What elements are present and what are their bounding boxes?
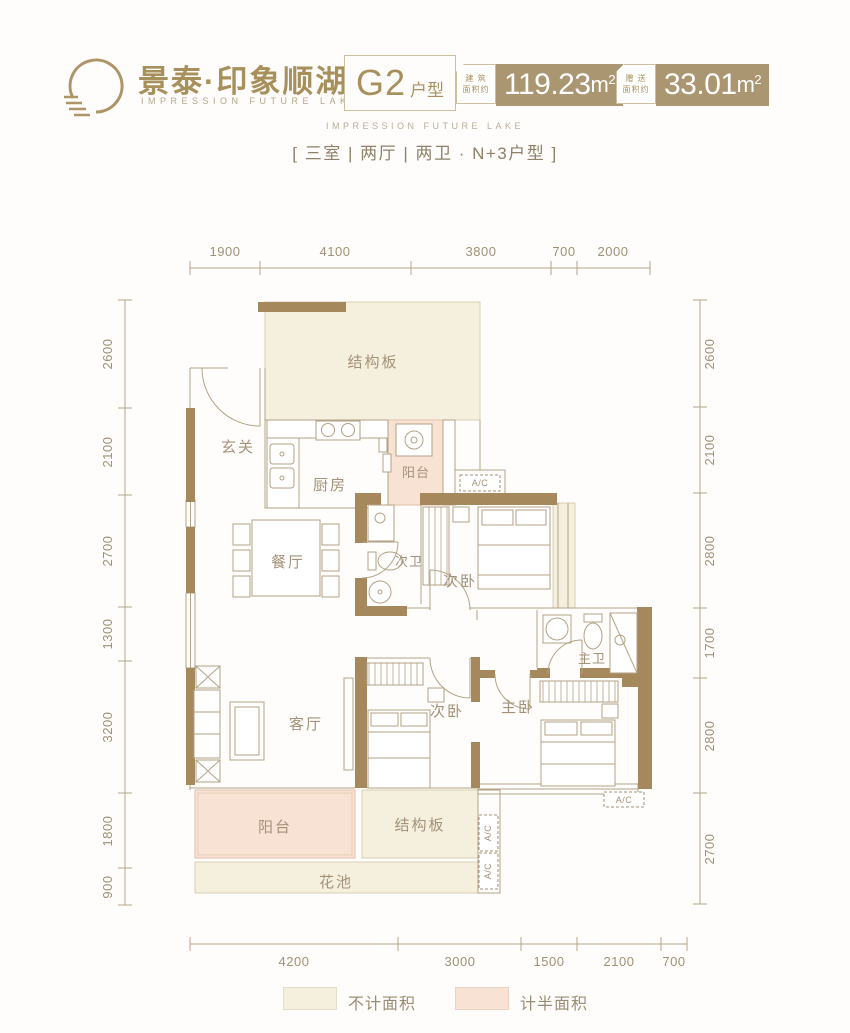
legend-swatch-half-counted (455, 987, 509, 1010)
dim-right-0: 2600 (702, 339, 717, 370)
label-bath1: 主卫 (578, 651, 606, 666)
legend-label-half-counted: 计半面积 (520, 990, 588, 1014)
dim-right-3: 1700 (702, 628, 717, 659)
label-foyer: 玄关 (221, 439, 255, 456)
dim-top-2: 3800 (466, 244, 497, 259)
label-ac-side-2: A/C (483, 863, 493, 880)
label-balcony-top: 阳台 (402, 465, 430, 480)
dim-right-1: 2100 (702, 435, 717, 466)
dim-right-2: 2800 (702, 536, 717, 567)
dim-bottom-1: 3000 (445, 954, 476, 969)
dim-top-1: 4100 (320, 244, 351, 259)
dim-right-5: 2700 (702, 834, 717, 865)
legend-label-uncounted: 不计面积 (348, 990, 416, 1014)
label-bedroom2a: 次卧 (443, 573, 477, 590)
label-dining: 餐厅 (271, 554, 305, 571)
label-living: 客厅 (289, 716, 323, 733)
bedroom2b-furniture (367, 663, 444, 788)
label-flower-bed: 花池 (319, 874, 353, 891)
label-slab-bottom: 结构板 (394, 816, 445, 834)
dim-left-6: 900 (100, 875, 115, 898)
dim-left-0: 2600 (100, 339, 115, 370)
living-furniture (194, 666, 353, 782)
dim-bottom-2: 1500 (534, 954, 565, 969)
label-ac-bottom-right: A/C (616, 795, 633, 805)
dim-top-0: 1900 (210, 244, 241, 259)
dim-bottom-4: 700 (662, 954, 685, 969)
washing-machine (396, 424, 432, 456)
dim-right-4: 2800 (702, 721, 717, 752)
bedroom1-furniture (540, 681, 618, 786)
dim-bottom-0: 4200 (279, 954, 310, 969)
dim-left-5: 1800 (100, 816, 115, 847)
floor-plan: 1900 4100 3800 700 2000 2600 2100 2700 1… (0, 0, 850, 1033)
dim-bottom-3: 2100 (604, 954, 635, 969)
label-kitchen: 厨房 (313, 477, 347, 494)
dim-left-3: 1300 (100, 619, 115, 650)
label-ac-side-1: A/C (483, 825, 493, 842)
label-slab-top: 结构板 (347, 353, 398, 371)
label-balcony-bottom: 阳台 (258, 819, 292, 836)
label-bedroom2b: 次卧 (430, 703, 464, 720)
dim-top-3: 700 (552, 244, 575, 259)
bay-window-zone (553, 503, 575, 608)
dim-left-4: 3200 (100, 712, 115, 743)
label-bath2: 次卫 (395, 554, 423, 569)
label-ac-top: A/C (472, 478, 489, 488)
dim-left-1: 2100 (100, 437, 115, 468)
dim-top-4: 2000 (598, 244, 629, 259)
dim-left-2: 2700 (100, 536, 115, 567)
legend-swatch-uncounted (283, 987, 337, 1010)
label-bedroom1: 主卧 (501, 699, 535, 716)
